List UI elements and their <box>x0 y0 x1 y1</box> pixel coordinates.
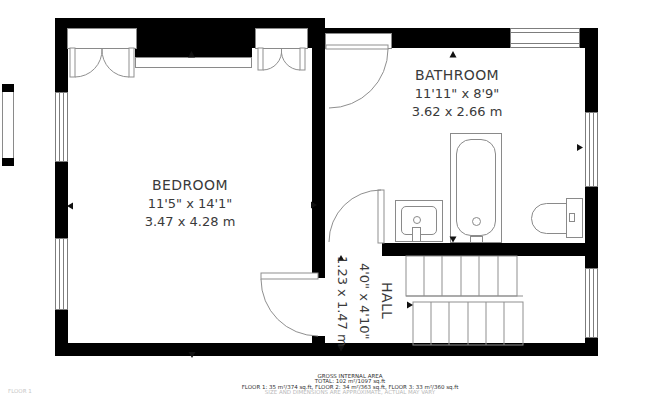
window-frame <box>589 268 594 338</box>
wall <box>382 243 598 256</box>
wall <box>312 48 325 278</box>
window-frame <box>59 238 64 310</box>
room-dims-ft: 4'0" x 4'10" <box>353 250 375 352</box>
room-dims-ft: 11'11" x 8'9" <box>372 85 542 103</box>
closet-recess <box>325 33 392 49</box>
room-name: BEDROOM <box>105 176 275 195</box>
room-dims-m: 3.47 x 4.28 m <box>105 213 275 231</box>
window-frame <box>59 92 64 162</box>
window <box>510 28 580 48</box>
door-leaf <box>258 48 263 70</box>
gia-disclaimer: SIZE AND DIMENSIONS ARE APPROXIMATE, ACT… <box>100 390 600 395</box>
window <box>55 92 68 162</box>
room-dims-m: 1.23 x 1.47 m <box>331 250 353 352</box>
door-leaf <box>378 190 384 243</box>
bathtub-drain <box>472 217 481 226</box>
wall <box>55 343 598 356</box>
window-frame <box>510 32 580 44</box>
window <box>585 268 598 338</box>
sink-drain <box>413 216 421 224</box>
bathroom-label: BATHROOM 11'11" x 8'9" 3.62 x 2.66 m <box>372 66 542 121</box>
door-leaf <box>70 48 75 77</box>
door-leaf <box>261 273 318 279</box>
floor-tag: FLOOR 1 <box>8 388 32 394</box>
room-dims-m: 3.62 x 2.66 m <box>372 103 542 121</box>
door-arc <box>329 190 381 242</box>
staircase <box>406 256 523 345</box>
window <box>55 238 68 310</box>
door-arc <box>75 49 102 77</box>
door-leaf <box>129 48 134 77</box>
measure-arrow-up <box>450 51 457 58</box>
bedroom-label: BEDROOM 11'5" x 14'1" 3.47 x 4.28 m <box>105 176 275 231</box>
measure-arrow-right <box>577 144 583 151</box>
door-arc <box>261 279 318 336</box>
bay-window <box>2 84 14 166</box>
closet-recess <box>67 28 137 49</box>
room-name: BATHROOM <box>372 66 542 85</box>
door-arc <box>281 49 300 70</box>
closet-recess <box>255 28 308 49</box>
gross-internal-area: GROSS INTERNAL AREA TOTAL: 102 m²/1097 s… <box>100 374 600 396</box>
toilet-flush-button <box>569 213 575 222</box>
wall <box>2 158 14 166</box>
room-dims-ft: 11'5" x 14'1" <box>105 195 275 213</box>
hall-label: HALL 4'0" x 4'10" 1.23 x 1.47 m <box>330 250 398 352</box>
room-name: HALL <box>375 250 398 352</box>
wall <box>312 336 325 356</box>
wall <box>2 84 14 92</box>
bathtub-faucet <box>470 236 483 243</box>
window-frame <box>589 112 594 187</box>
floor-plan: BEDROOM 11'5" x 14'1" 3.47 x 4.28 m BATH… <box>0 0 650 406</box>
niche <box>135 57 252 68</box>
window <box>585 112 598 187</box>
toilet-bowl <box>531 203 571 234</box>
door-arc <box>263 49 282 70</box>
measure-arrow-right <box>407 302 413 309</box>
wall <box>135 48 252 57</box>
sink-faucet <box>412 227 421 242</box>
door-leaf <box>300 48 305 70</box>
door-arc <box>102 49 129 77</box>
